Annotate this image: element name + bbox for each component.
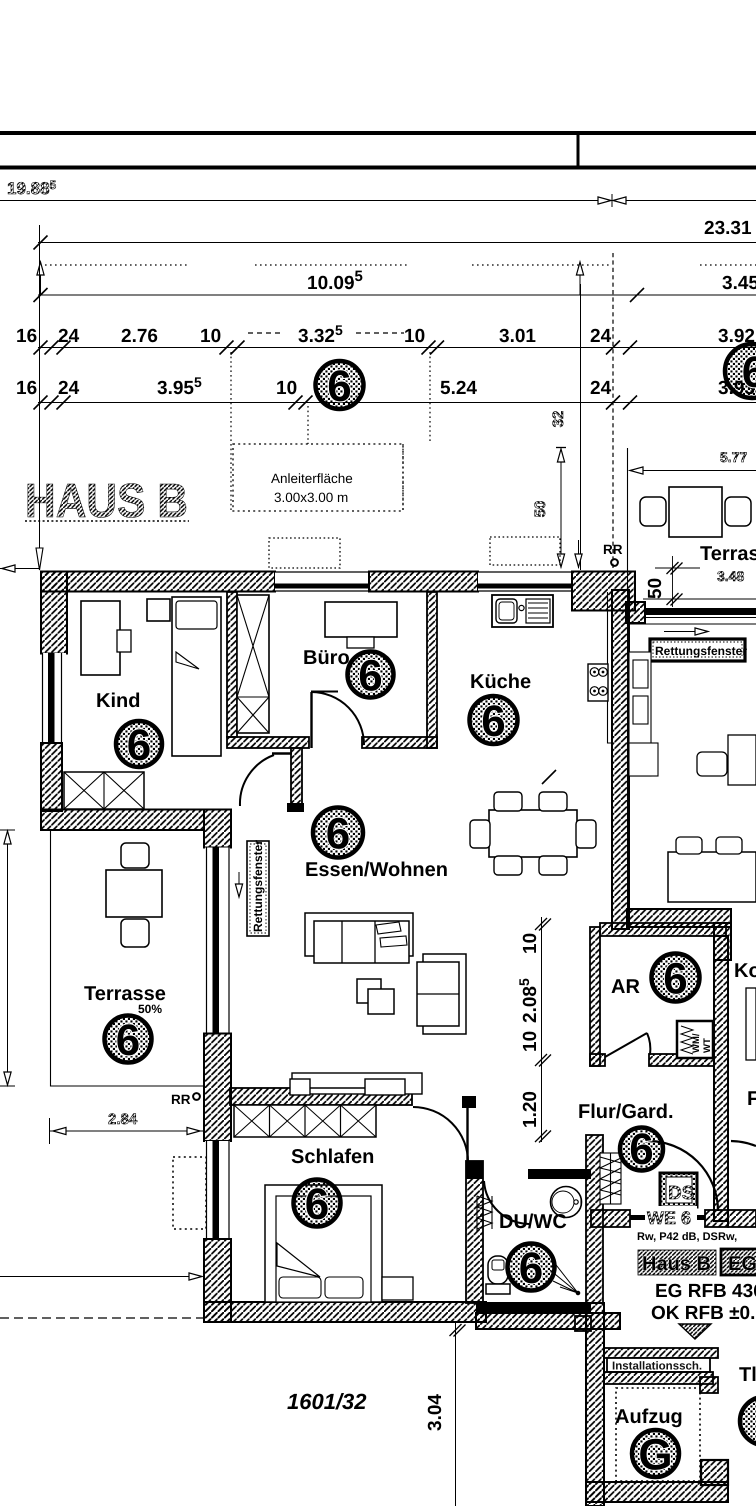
svg-text:6: 6 (481, 697, 505, 746)
svg-text:24: 24 (58, 326, 80, 347)
svg-text:6: 6 (358, 652, 382, 701)
svg-text:DS: DS (668, 1183, 694, 1204)
svg-text:24: 24 (590, 326, 612, 347)
svg-text:Flur/Gard.: Flur/Gard. (578, 1101, 674, 1123)
svg-text:2.84: 2.84 (108, 1111, 138, 1128)
svg-text:3.45: 3.45 (722, 273, 756, 294)
svg-text:6: 6 (127, 721, 151, 770)
svg-text:Rettungsfenster: Rettungsfenster (251, 840, 265, 932)
svg-text:6: 6 (519, 1244, 543, 1293)
svg-text:10: 10 (200, 326, 221, 347)
svg-text:24: 24 (58, 378, 80, 399)
svg-text:5.77: 5.77 (720, 449, 747, 465)
svg-text:Aufzug: Aufzug (615, 1406, 683, 1428)
svg-text:Rw, P42 dB, DS: Rw, P42 dB, DS (637, 1231, 718, 1243)
svg-text:G: G (638, 1431, 672, 1480)
svg-text:16: 16 (16, 378, 37, 399)
svg-text:10: 10 (520, 933, 541, 954)
svg-text:1601/32: 1601/32 (287, 1389, 367, 1414)
svg-text:Ko: Ko (734, 960, 756, 982)
svg-text:RR: RR (603, 542, 623, 557)
svg-text:6: 6 (663, 955, 687, 1004)
svg-text:2.76: 2.76 (121, 326, 158, 347)
svg-text:50%: 50% (138, 1002, 162, 1016)
svg-text:OK RFB ±0.00: OK RFB ±0.00 (651, 1303, 756, 1324)
svg-text:6: 6 (629, 1125, 653, 1174)
svg-text:19.885: 19.885 (7, 178, 57, 198)
svg-text:Installationssch.: Installationssch. (612, 1361, 702, 1373)
svg-text:23.31: 23.31 (704, 218, 752, 239)
svg-text:Terras: Terras (700, 543, 756, 565)
svg-text:DU/WC: DU/WC (499, 1211, 567, 1233)
svg-text:Büro: Büro (303, 647, 350, 669)
svg-text:5.24: 5.24 (440, 378, 477, 399)
svg-text:1.20: 1.20 (520, 1091, 541, 1128)
svg-text:6: 6 (305, 1180, 329, 1229)
svg-text:F: F (747, 1088, 756, 1110)
svg-text:EG RFB 436.55: EG RFB 436.55 (655, 1281, 756, 1302)
svg-text:10: 10 (276, 378, 297, 399)
svg-text:WM/: WM/ (691, 1033, 702, 1053)
svg-text:Rettungsfenster: Rettungsfenster (655, 644, 747, 658)
svg-text:Haus B: Haus B (642, 1253, 711, 1275)
svg-text:AR: AR (611, 976, 640, 998)
svg-text:WT: WT (702, 1038, 713, 1053)
svg-text:Kind: Kind (96, 690, 140, 712)
svg-text:3.00x3.00 m: 3.00x3.00 m (274, 490, 348, 505)
svg-text:HAUS B: HAUS B (25, 475, 188, 528)
svg-text:RR: RR (171, 1092, 191, 1107)
svg-text:32: 32 (550, 411, 567, 428)
svg-text:3.01: 3.01 (499, 326, 536, 347)
svg-text:50: 50 (645, 578, 666, 599)
svg-text:6: 6 (742, 348, 756, 397)
svg-text:6: 6 (327, 362, 351, 411)
svg-text:WE 6: WE 6 (647, 1208, 691, 1228)
svg-text:10: 10 (520, 1031, 541, 1052)
svg-text:3.48: 3.48 (717, 568, 744, 584)
svg-text:Essen/Wohnen: Essen/Wohnen (305, 859, 448, 881)
svg-text:6: 6 (116, 1016, 140, 1065)
svg-text:Schlafen: Schlafen (291, 1146, 374, 1168)
svg-text:50: 50 (532, 501, 549, 518)
svg-text:Tl: Tl (739, 1364, 756, 1386)
svg-text:10: 10 (404, 326, 425, 347)
svg-text:6: 6 (326, 810, 350, 859)
svg-text:EG: EG (728, 1253, 756, 1275)
svg-text:Küche: Küche (470, 671, 531, 693)
svg-text:3.04: 3.04 (425, 1394, 446, 1431)
svg-text:Anleiterfläche: Anleiterfläche (271, 471, 353, 486)
svg-text:16: 16 (16, 326, 37, 347)
svg-text:Rw,: Rw, (718, 1231, 737, 1243)
svg-text:24: 24 (590, 378, 612, 399)
